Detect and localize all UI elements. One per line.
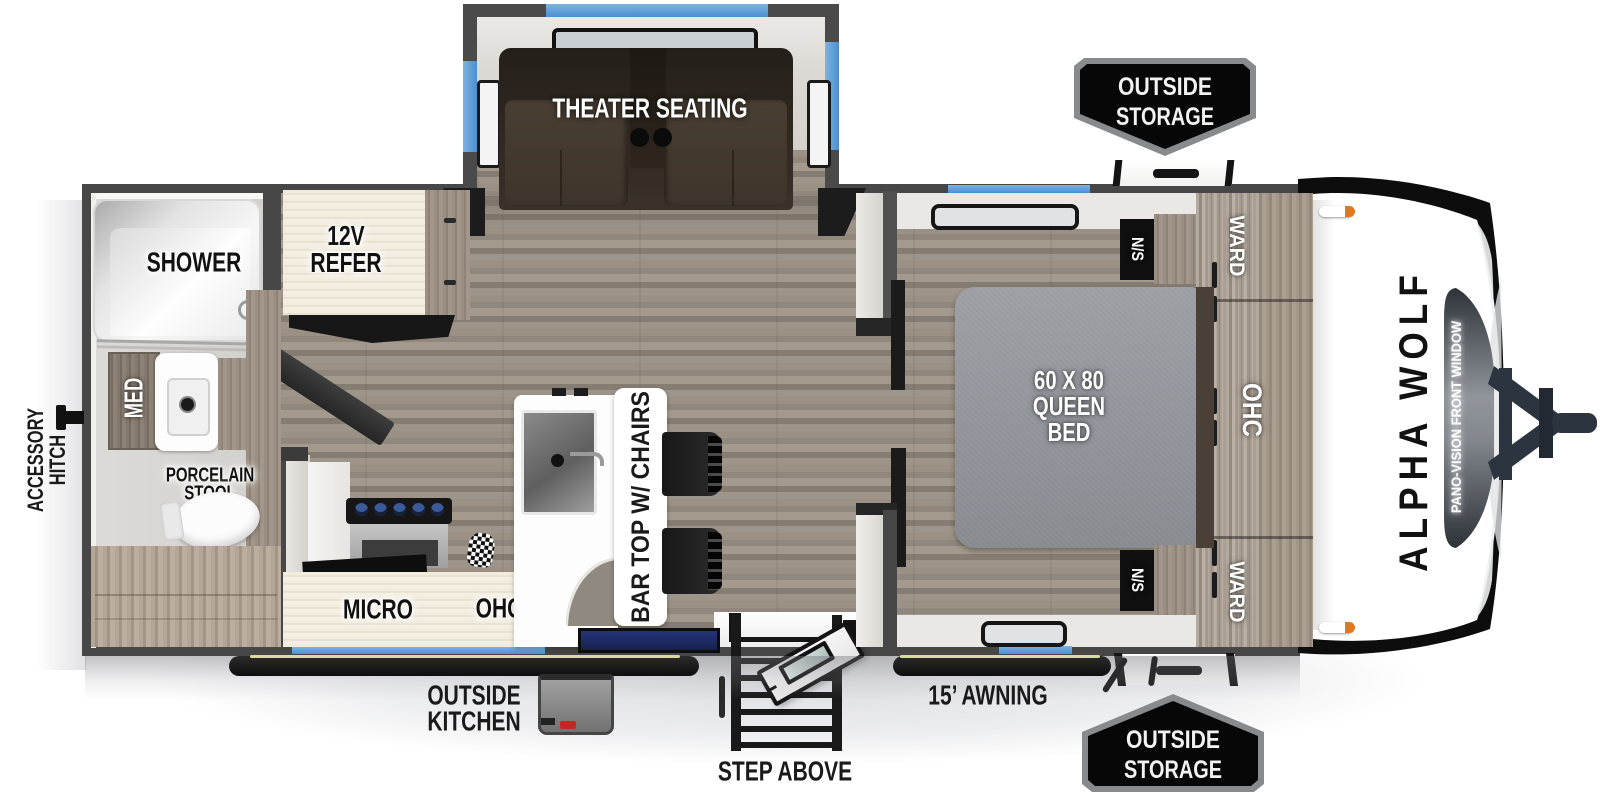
svg-text:STORAGE: STORAGE (1124, 756, 1222, 784)
svg-text:STORAGE: STORAGE (1116, 103, 1214, 131)
svg-text:OUTSIDE: OUTSIDE (1118, 73, 1212, 101)
svg-text:OUTSIDE: OUTSIDE (1126, 726, 1220, 754)
